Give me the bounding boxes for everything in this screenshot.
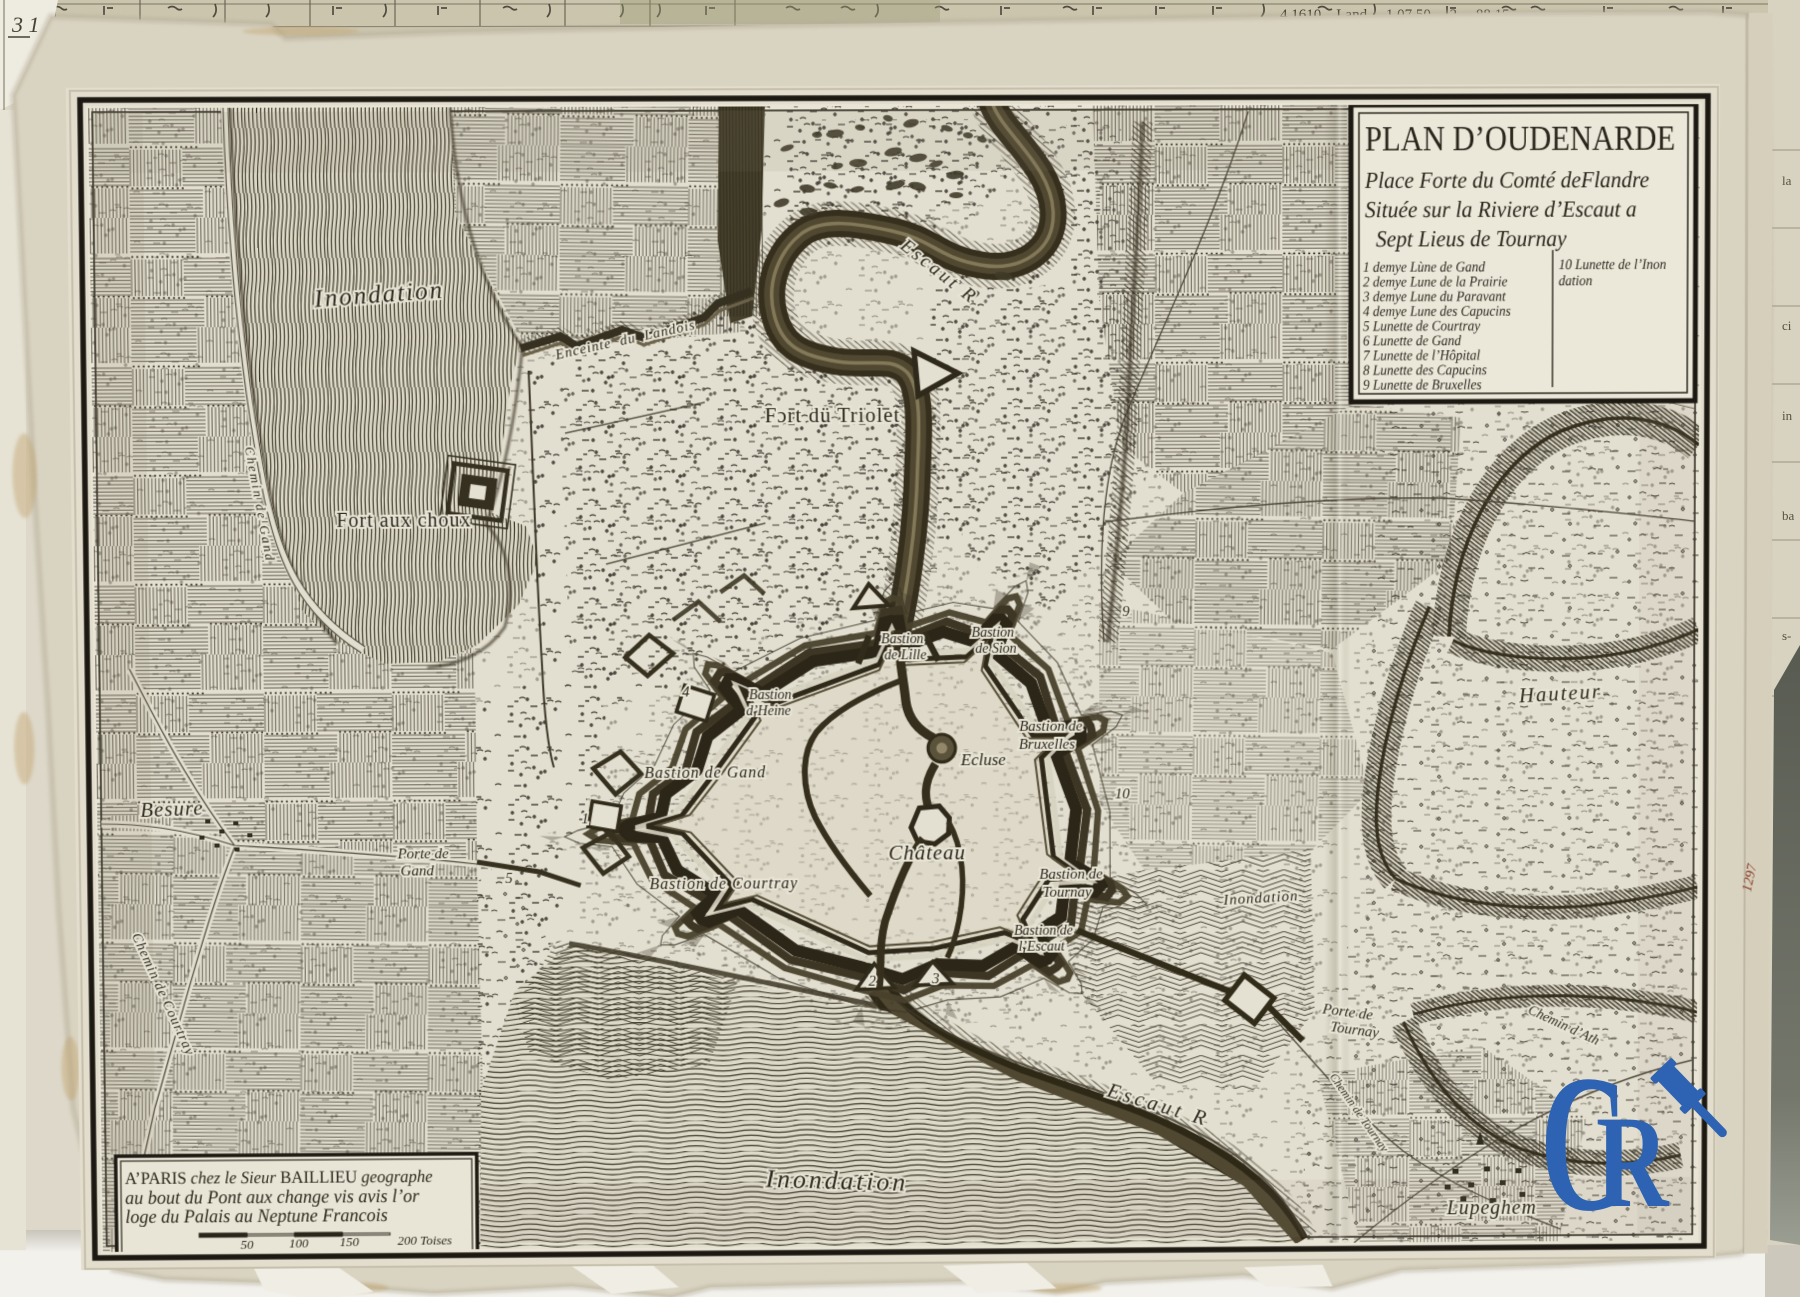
svg-text:R: R xyxy=(1596,1090,1670,1235)
